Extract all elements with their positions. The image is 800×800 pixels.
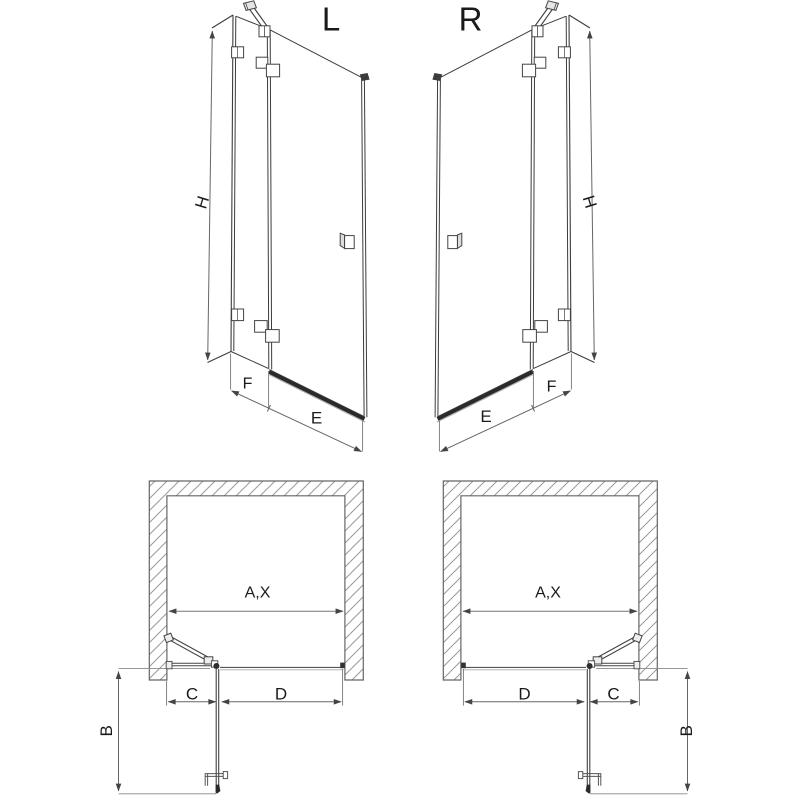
left-plan-view: A,X C D B: [97, 481, 363, 794]
left-view-label: L: [322, 1, 340, 38]
shower-door-diagram: L H F E R H E F A,X C D B A,X D C B: [0, 0, 800, 800]
left-elevation-fixed-dim-label: F: [243, 376, 253, 393]
right-plan-walls: [443, 481, 657, 680]
right-elevation-door-dim-label: E: [480, 407, 491, 426]
left-elevation-art: [208, 1, 370, 452]
right-plan-view: A,X D C B: [443, 481, 696, 794]
right-elevation-view: R H E F: [432, 1, 601, 452]
left-plan-door-dim-label: D: [275, 684, 287, 703]
right-plan-opening-dim-label: A,X: [535, 585, 561, 602]
right-plan-door-dim-label: D: [518, 684, 530, 703]
technical-drawing-page: L H F E R H E F A,X C D B A,X D C B: [0, 0, 800, 800]
right-plan-fixed-dim-label: C: [607, 684, 619, 703]
left-plan-walls: [149, 481, 363, 680]
left-elevation-view: L H F E: [191, 1, 369, 452]
left-elevation-door-dim-label: E: [311, 408, 322, 427]
right-view-label: R: [459, 1, 483, 38]
left-plan-opening-dim-label: A,X: [245, 585, 271, 602]
left-plan-swing-dim-label: B: [97, 725, 116, 736]
right-plan-swing-dim-label: B: [677, 725, 696, 736]
right-elevation-height-dim-label: H: [579, 193, 601, 210]
right-elevation-fixed-dim-label: F: [547, 379, 557, 396]
left-plan-fixed-dim-label: C: [186, 684, 198, 703]
right-elevation-art: [432, 1, 594, 452]
